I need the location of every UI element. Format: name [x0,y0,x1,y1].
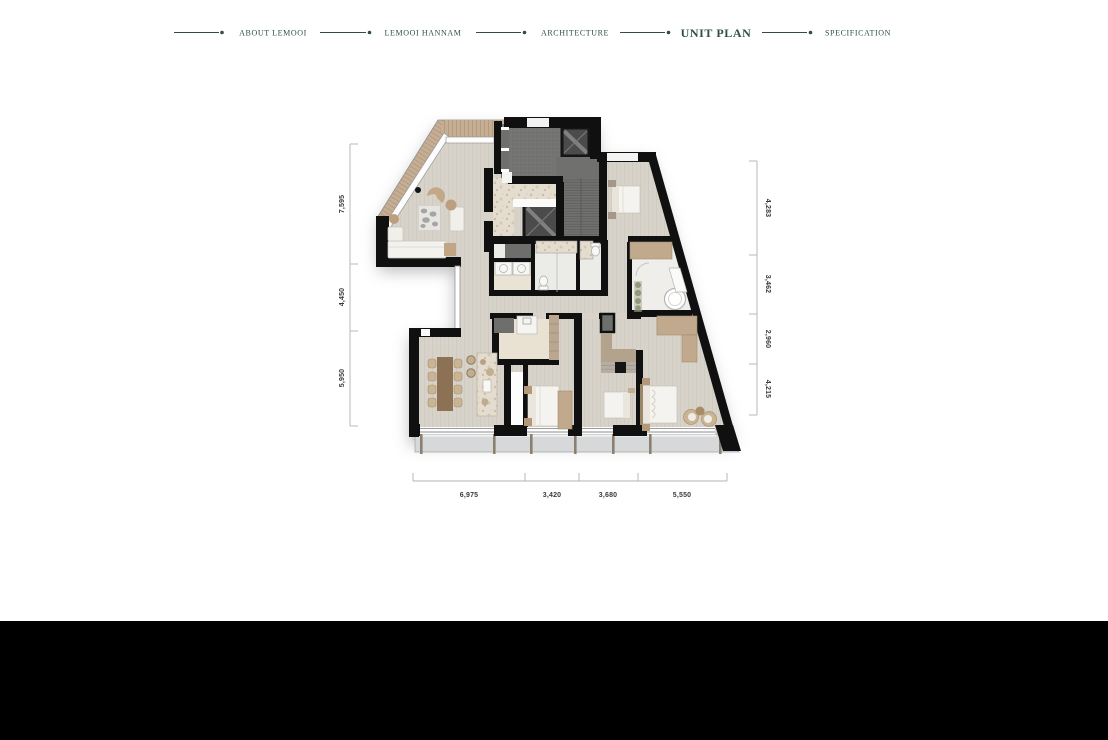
svg-text:ARCHITECTURE: ARCHITECTURE [541,29,609,38]
svg-text:5,950: 5,950 [339,369,346,388]
svg-text:7,595: 7,595 [339,195,346,214]
svg-text:6,975: 6,975 [460,492,479,499]
svg-text:2,960: 2,960 [764,330,771,349]
svg-text:SPECIFICATION: SPECIFICATION [825,29,891,38]
svg-text:3,680: 3,680 [599,492,618,499]
svg-text:ABOUT LEMOOI: ABOUT LEMOOI [239,29,307,38]
svg-text:3,420: 3,420 [543,492,562,499]
svg-text:4,215: 4,215 [764,380,771,399]
svg-text:UNIT PLAN: UNIT PLAN [681,26,752,40]
svg-text:5,550: 5,550 [673,492,692,499]
svg-text:LEMOOI HANNAM: LEMOOI HANNAM [385,29,462,38]
svg-text:3,462: 3,462 [764,275,771,294]
svg-text:4,283: 4,283 [764,199,771,218]
svg-text:4,450: 4,450 [339,288,346,307]
